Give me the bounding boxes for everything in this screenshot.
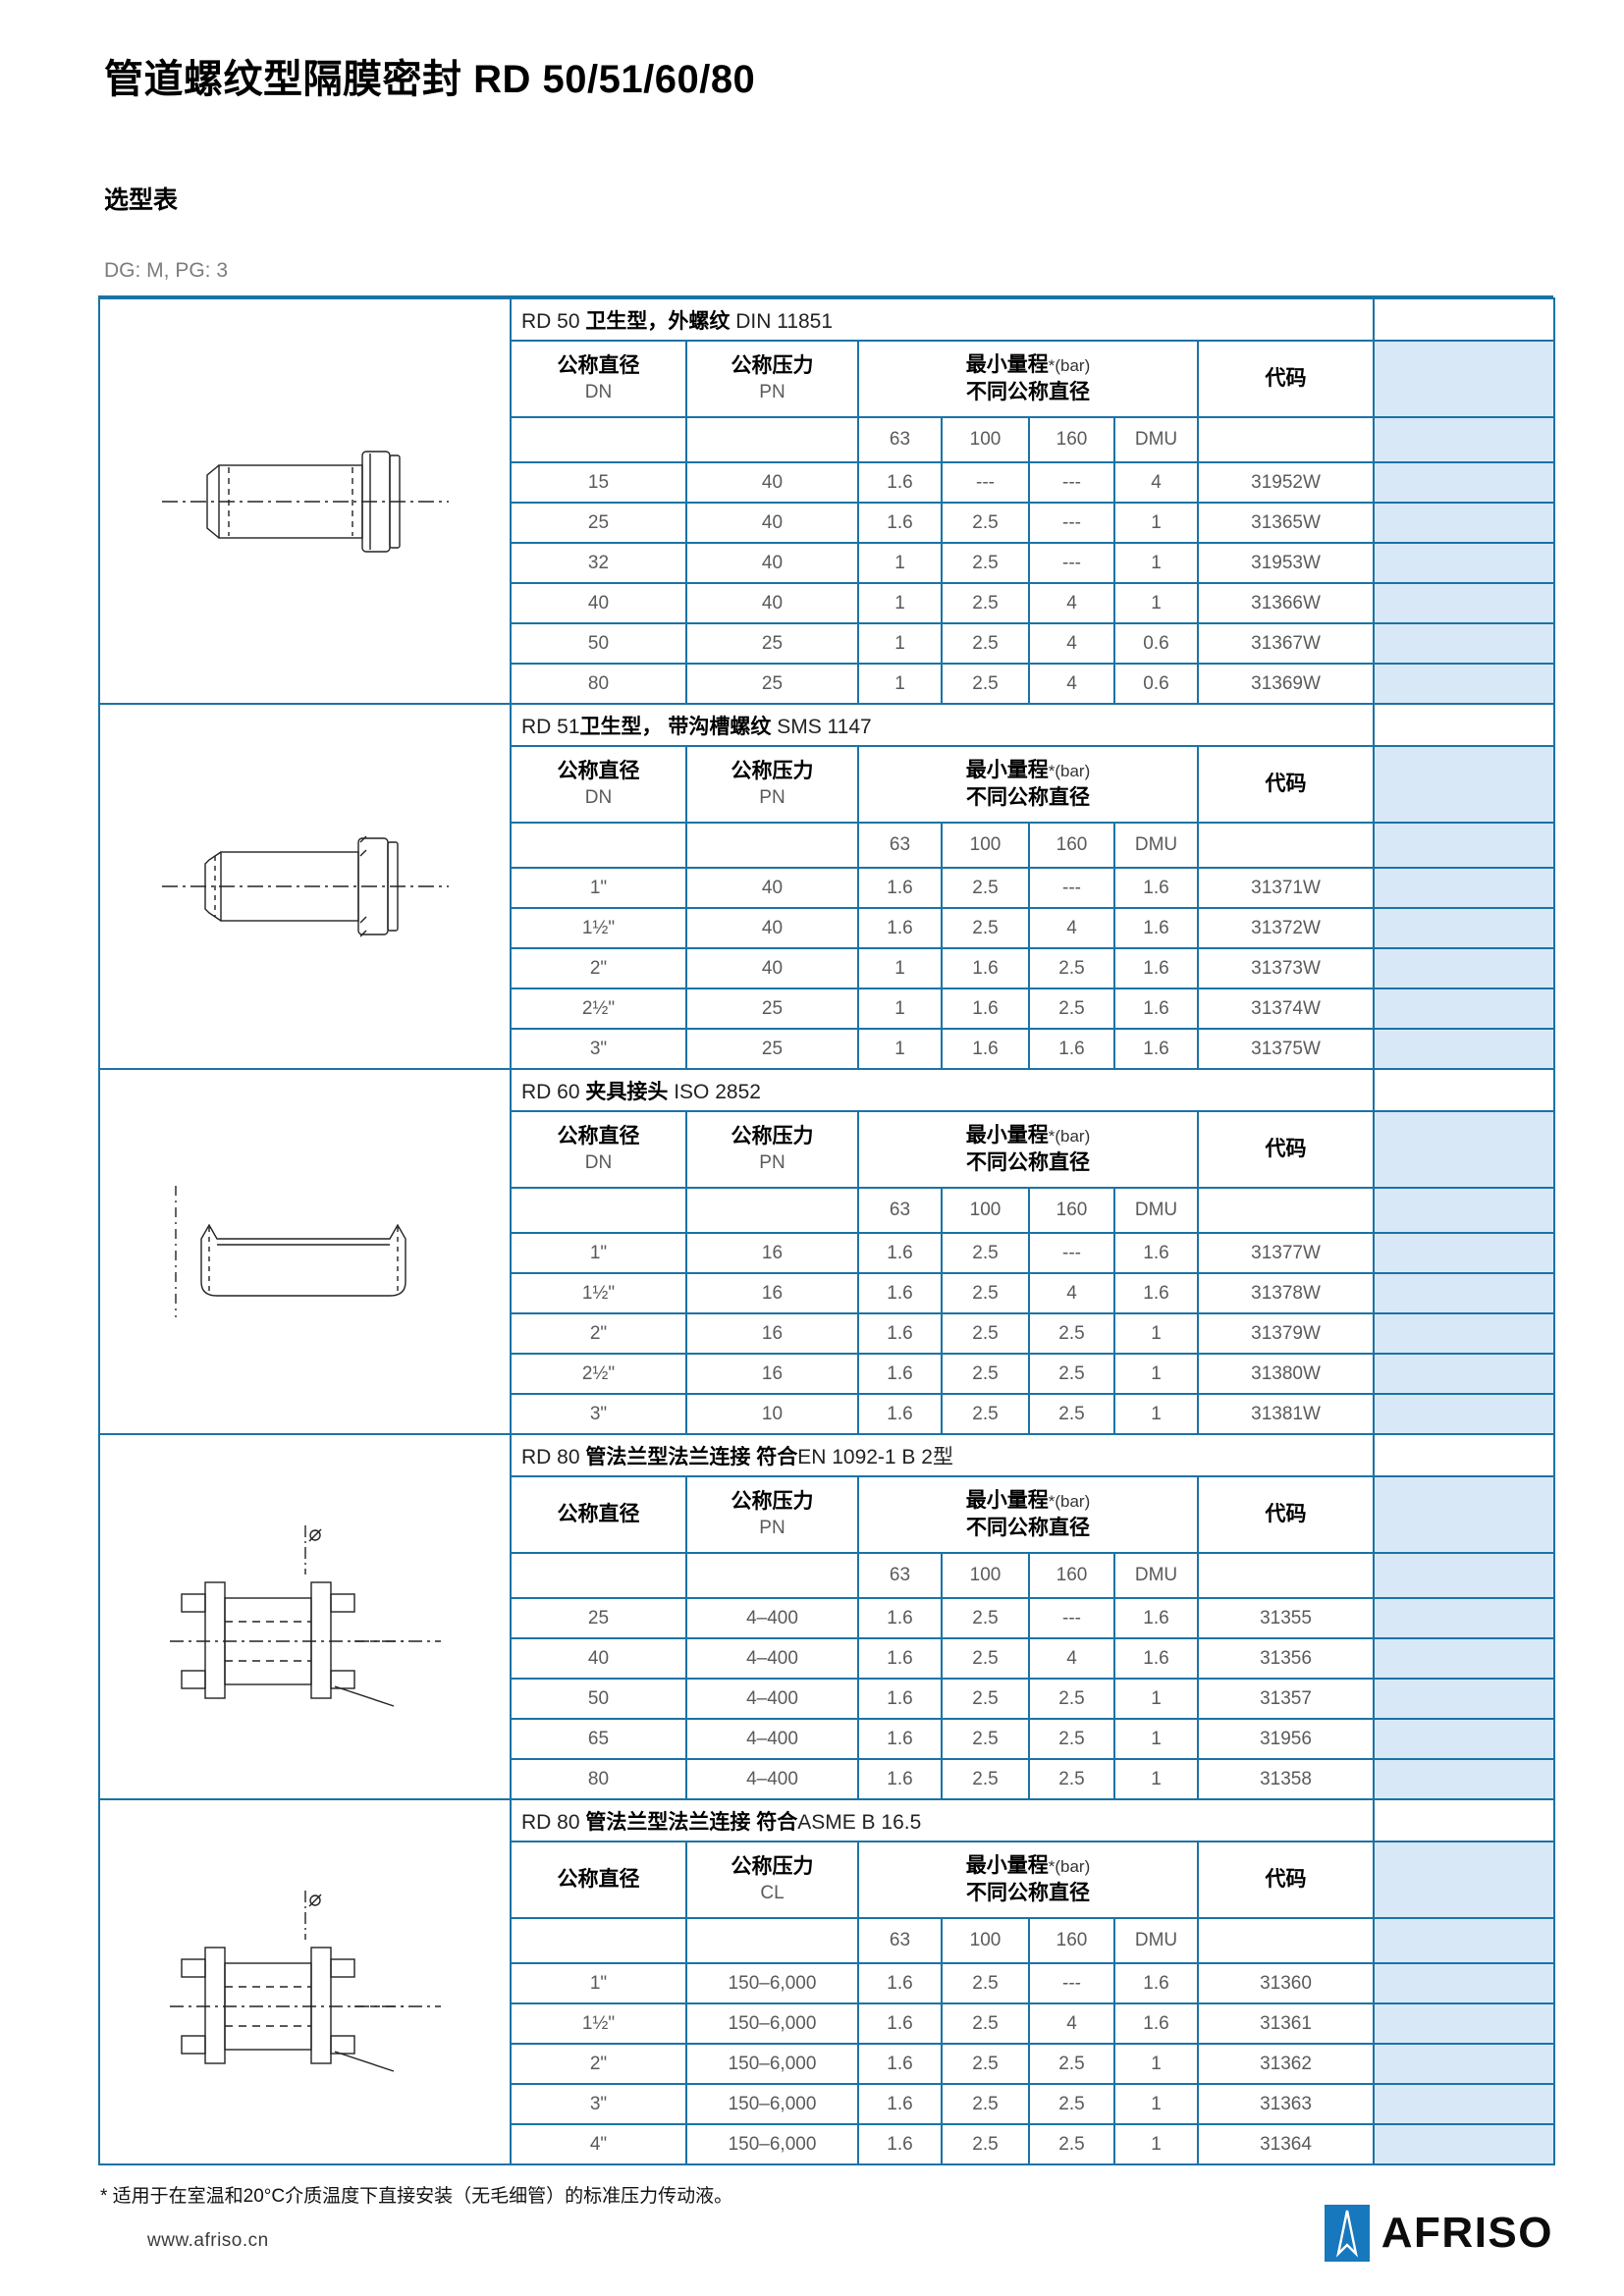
range-63-value: 1.6 bbox=[858, 1273, 942, 1313]
range-subheader-cell: DMU bbox=[1114, 417, 1198, 462]
range-subheader-cell: 160 bbox=[1029, 1918, 1114, 1963]
range-63-value: 1.6 bbox=[858, 1679, 942, 1719]
code-value: 31371W bbox=[1198, 868, 1374, 908]
shaded-cell bbox=[1374, 417, 1554, 462]
min-range-header-cell: 最小量程*(bar)不同公称直径 bbox=[858, 746, 1198, 823]
shaded-cell bbox=[1374, 908, 1554, 948]
pn-header-cell: 公称压力PN bbox=[686, 341, 858, 417]
section-table-rd50: RD 50 卫生型，外螺纹 DIN 11851公称直径DN公称压力PN最小量程*… bbox=[98, 297, 1555, 705]
pn-header-cell: 公称压力PN bbox=[686, 1111, 858, 1188]
code-value: 31374W bbox=[1198, 988, 1374, 1029]
section-title: RD 80 管法兰型法兰连接 符合ASME B 16.5 bbox=[511, 1799, 1374, 1842]
range-subheader-cell: DMU bbox=[1114, 823, 1198, 868]
range-100-value: 2.5 bbox=[942, 1273, 1029, 1313]
min-range-header-cell: 最小量程*(bar)不同公称直径 bbox=[858, 1842, 1198, 1918]
range-dmu-value: 1 bbox=[1114, 1354, 1198, 1394]
rd51-grooved-coupling-drawing bbox=[158, 813, 453, 960]
range-subheader-cell: 63 bbox=[858, 1553, 942, 1598]
range-subheader-cell: DMU bbox=[1114, 1188, 1198, 1233]
section-body: RD 51卫生型， 带沟槽螺纹 SMS 1147公称直径DN公称压力PN最小量程… bbox=[99, 704, 1554, 1069]
dn-header-cell: 公称直径DN bbox=[511, 341, 686, 417]
section-title-segment: EN 1092-1 B 2型 bbox=[797, 1446, 953, 1468]
range-160-value: 2.5 bbox=[1029, 948, 1114, 988]
shaded-cell bbox=[1374, 1233, 1554, 1273]
range-subheader-cell: 100 bbox=[942, 417, 1029, 462]
range-63-value: 1.6 bbox=[858, 1598, 942, 1638]
shaded-cell bbox=[1374, 2003, 1554, 2044]
shaded-cell bbox=[1374, 1394, 1554, 1434]
range-100-value: --- bbox=[942, 462, 1029, 503]
shaded-cell bbox=[1374, 948, 1554, 988]
pn-value: 40 bbox=[686, 583, 858, 623]
range-63-value: 1 bbox=[858, 583, 942, 623]
range-subheader-cell: 160 bbox=[1029, 1188, 1114, 1233]
shaded-cell bbox=[1374, 2124, 1554, 2164]
section-title-row: RD 50 卫生型，外螺纹 DIN 11851 bbox=[99, 298, 1554, 341]
range-100-value: 2.5 bbox=[942, 1719, 1029, 1759]
range-100-value: 2.5 bbox=[942, 2044, 1029, 2084]
empty-cell bbox=[511, 823, 686, 868]
range-subheader-cell: 160 bbox=[1029, 417, 1114, 462]
shaded-cell bbox=[1374, 1598, 1554, 1638]
section-table-rd80-asme: RD 80 管法兰型法兰连接 符合ASME B 16.5公称直径公称压力CL最小… bbox=[98, 1798, 1555, 2165]
range-63-value: 1.6 bbox=[858, 1354, 942, 1394]
dn-value: 80 bbox=[511, 1759, 686, 1799]
pn-value: 16 bbox=[686, 1354, 858, 1394]
dn-value: 15 bbox=[511, 462, 686, 503]
range-100-value: 2.5 bbox=[942, 1598, 1029, 1638]
footer-url: www.afriso.cn bbox=[147, 2230, 269, 2252]
dn-value: 50 bbox=[511, 623, 686, 664]
dn-header-cell: 公称直径DN bbox=[511, 1111, 686, 1188]
range-dmu-value: 1.6 bbox=[1114, 1598, 1198, 1638]
shaded-cell bbox=[1374, 1553, 1554, 1598]
pn-value: 150–6,000 bbox=[686, 2124, 858, 2164]
dn-header-cell: 公称直径 bbox=[511, 1476, 686, 1553]
range-dmu-value: 1 bbox=[1114, 2124, 1198, 2164]
shaded-cell bbox=[1374, 1679, 1554, 1719]
range-dmu-value: 1.6 bbox=[1114, 908, 1198, 948]
dn-value: 1½" bbox=[511, 1273, 686, 1313]
code-value: 31365W bbox=[1198, 503, 1374, 543]
code-value: 31362 bbox=[1198, 2044, 1374, 2084]
range-subheader-cell: 63 bbox=[858, 417, 942, 462]
empty-cell bbox=[1198, 1188, 1374, 1233]
empty-cell bbox=[511, 1918, 686, 1963]
pn-value: 25 bbox=[686, 664, 858, 704]
code-value: 31361 bbox=[1198, 2003, 1374, 2044]
min-range-header-cell: 最小量程*(bar)不同公称直径 bbox=[858, 1111, 1198, 1188]
range-63-value: 1.6 bbox=[858, 1963, 942, 2003]
shaded-cell bbox=[1374, 988, 1554, 1029]
shaded-cell bbox=[1374, 1188, 1554, 1233]
dn-value: 1" bbox=[511, 868, 686, 908]
range-63-value: 1.6 bbox=[858, 908, 942, 948]
afriso-logo-wordmark: AFRISO bbox=[1381, 2209, 1553, 2258]
selection-table: RD 50 卫生型，外螺纹 DIN 11851公称直径DN公称压力PN最小量程*… bbox=[98, 297, 1553, 2208]
range-100-value: 2.5 bbox=[942, 543, 1029, 583]
title-row-blank-cell bbox=[1374, 704, 1554, 746]
range-subheader-cell: 63 bbox=[858, 1918, 942, 1963]
dn-header-cell: 公称直径DN bbox=[511, 746, 686, 823]
section-title-segment: ASME B 16.5 bbox=[797, 1811, 921, 1834]
range-63-value: 1.6 bbox=[858, 2003, 942, 2044]
range-63-value: 1 bbox=[858, 623, 942, 664]
range-160-value: 4 bbox=[1029, 1273, 1114, 1313]
range-100-value: 2.5 bbox=[942, 1354, 1029, 1394]
dn-value: 3" bbox=[511, 1394, 686, 1434]
section-title-segment: 夹具接头 bbox=[585, 1081, 668, 1103]
datasheet-page: 管道螺纹型隔膜密封 RD 50/51/60/80 选型表 DG: M, PG: … bbox=[0, 0, 1624, 2296]
range-dmu-value: 1 bbox=[1114, 1394, 1198, 1434]
shaded-cell bbox=[1374, 746, 1554, 823]
range-subheader-cell: 63 bbox=[858, 823, 942, 868]
section-title-segment: RD 60 bbox=[521, 1081, 585, 1103]
section-title-segment: SMS 1147 bbox=[771, 716, 871, 738]
code-value: 31355 bbox=[1198, 1598, 1374, 1638]
code-value: 31378W bbox=[1198, 1273, 1374, 1313]
code-value: 31369W bbox=[1198, 664, 1374, 704]
range-100-value: 2.5 bbox=[942, 2124, 1029, 2164]
range-160-value: 2.5 bbox=[1029, 1759, 1114, 1799]
dn-value: 25 bbox=[511, 503, 686, 543]
section-body: RD 80 管法兰型法兰连接 符合ASME B 16.5公称直径公称压力CL最小… bbox=[99, 1799, 1554, 2164]
code-value: 31952W bbox=[1198, 462, 1374, 503]
section-table-rd60: RD 60 夹具接头 ISO 2852公称直径DN公称压力PN最小量程*(bar… bbox=[98, 1068, 1555, 1435]
section-title: RD 51卫生型， 带沟槽螺纹 SMS 1147 bbox=[511, 704, 1374, 746]
pn-value: 150–6,000 bbox=[686, 2044, 858, 2084]
code-value: 31953W bbox=[1198, 543, 1374, 583]
code-value: 31367W bbox=[1198, 623, 1374, 664]
range-63-value: 1 bbox=[858, 948, 942, 988]
dn-value: 40 bbox=[511, 583, 686, 623]
range-dmu-value: 1.6 bbox=[1114, 948, 1198, 988]
empty-cell bbox=[1198, 1553, 1374, 1598]
section-title-segment: RD 51 bbox=[521, 716, 580, 738]
range-subheader-cell: 63 bbox=[858, 1188, 942, 1233]
pn-value: 4–400 bbox=[686, 1638, 858, 1679]
range-63-value: 1.6 bbox=[858, 868, 942, 908]
code-value: 31356 bbox=[1198, 1638, 1374, 1679]
range-subheader-cell: 100 bbox=[942, 1188, 1029, 1233]
shaded-cell bbox=[1374, 868, 1554, 908]
shaded-cell bbox=[1374, 1273, 1554, 1313]
range-63-value: 1.6 bbox=[858, 1759, 942, 1799]
pn-value: 4–400 bbox=[686, 1679, 858, 1719]
range-63-value: 1.6 bbox=[858, 2084, 942, 2124]
range-dmu-value: 1 bbox=[1114, 543, 1198, 583]
section-title-segment: 管法兰型法兰连接 符合 bbox=[585, 1811, 797, 1834]
shaded-cell bbox=[1374, 664, 1554, 704]
pn-value: 25 bbox=[686, 988, 858, 1029]
pn-value: 25 bbox=[686, 1029, 858, 1069]
range-160-value: --- bbox=[1029, 462, 1114, 503]
pn-value: 16 bbox=[686, 1233, 858, 1273]
pn-value: 150–6,000 bbox=[686, 1963, 858, 2003]
code-header-cell: 代码 bbox=[1198, 1111, 1374, 1188]
min-range-header-cell: 最小量程*(bar)不同公称直径 bbox=[858, 1476, 1198, 1553]
section-body: RD 50 卫生型，外螺纹 DIN 11851公称直径DN公称压力PN最小量程*… bbox=[99, 298, 1554, 704]
code-value: 31364 bbox=[1198, 2124, 1374, 2164]
range-63-value: 1 bbox=[858, 543, 942, 583]
dn-value: 3" bbox=[511, 2084, 686, 2124]
range-dmu-value: 1.6 bbox=[1114, 1963, 1198, 2003]
section-title-row: RD 51卫生型， 带沟槽螺纹 SMS 1147 bbox=[99, 704, 1554, 746]
shaded-cell bbox=[1374, 1963, 1554, 2003]
range-160-value: 2.5 bbox=[1029, 1354, 1114, 1394]
empty-cell bbox=[686, 823, 858, 868]
empty-cell bbox=[1198, 1918, 1374, 1963]
range-dmu-value: 1.6 bbox=[1114, 868, 1198, 908]
range-subheader-cell: 100 bbox=[942, 1553, 1029, 1598]
afriso-logo-icon bbox=[1325, 2205, 1370, 2262]
section-title-segment: 管法兰型法兰连接 符合 bbox=[585, 1446, 797, 1468]
product-drawing-cell bbox=[99, 1069, 511, 1434]
code-value: 31366W bbox=[1198, 583, 1374, 623]
range-63-value: 1.6 bbox=[858, 2044, 942, 2084]
shaded-cell bbox=[1374, 2044, 1554, 2084]
shaded-cell bbox=[1374, 341, 1554, 417]
shaded-cell bbox=[1374, 1313, 1554, 1354]
section-title-segment: RD 80 bbox=[521, 1811, 585, 1834]
pn-value: 150–6,000 bbox=[686, 2084, 858, 2124]
section-title-segment: RD 80 bbox=[521, 1446, 585, 1468]
section-title-segment: RD 50 bbox=[521, 310, 585, 333]
range-160-value: 4 bbox=[1029, 623, 1114, 664]
section-table-rd80-en: RD 80 管法兰型法兰连接 符合EN 1092-1 B 2型公称直径公称压力P… bbox=[98, 1433, 1555, 1800]
section-table-rd51: RD 51卫生型， 带沟槽螺纹 SMS 1147公称直径DN公称压力PN最小量程… bbox=[98, 703, 1555, 1070]
pn-value: 40 bbox=[686, 868, 858, 908]
code-value: 31956 bbox=[1198, 1719, 1374, 1759]
range-subheader-cell: 160 bbox=[1029, 823, 1114, 868]
code-value: 31372W bbox=[1198, 908, 1374, 948]
range-100-value: 2.5 bbox=[942, 2003, 1029, 2044]
pn-value: 40 bbox=[686, 948, 858, 988]
section-title: RD 50 卫生型，外螺纹 DIN 11851 bbox=[511, 298, 1374, 341]
range-100-value: 2.5 bbox=[942, 664, 1029, 704]
section-title-segment: ISO 2852 bbox=[668, 1081, 761, 1103]
range-dmu-value: 1 bbox=[1114, 503, 1198, 543]
code-header-cell: 代码 bbox=[1198, 341, 1374, 417]
dn-value: 40 bbox=[511, 1638, 686, 1679]
empty-cell bbox=[686, 1918, 858, 1963]
range-100-value: 2.5 bbox=[942, 908, 1029, 948]
range-dmu-value: 1 bbox=[1114, 1313, 1198, 1354]
empty-cell bbox=[511, 1188, 686, 1233]
section-title: RD 80 管法兰型法兰连接 符合EN 1092-1 B 2型 bbox=[511, 1434, 1374, 1476]
dn-header-cell: 公称直径 bbox=[511, 1842, 686, 1918]
range-subheader-cell: DMU bbox=[1114, 1553, 1198, 1598]
range-subheader-cell: 100 bbox=[942, 1918, 1029, 1963]
range-160-value: 2.5 bbox=[1029, 2124, 1114, 2164]
range-100-value: 2.5 bbox=[942, 868, 1029, 908]
range-160-value: --- bbox=[1029, 543, 1114, 583]
page-subtitle: 选型表 bbox=[104, 181, 178, 216]
range-63-value: 1 bbox=[858, 664, 942, 704]
product-drawing-cell bbox=[99, 1434, 511, 1799]
dn-value: 1½" bbox=[511, 2003, 686, 2044]
shaded-cell bbox=[1374, 1759, 1554, 1799]
range-dmu-value: 0.6 bbox=[1114, 664, 1198, 704]
code-value: 31357 bbox=[1198, 1679, 1374, 1719]
dn-value: 2½" bbox=[511, 988, 686, 1029]
rd50-threaded-coupling-drawing bbox=[158, 428, 453, 575]
pn-value: 150–6,000 bbox=[686, 2003, 858, 2044]
range-subheader-cell: DMU bbox=[1114, 1918, 1198, 1963]
code-value: 31363 bbox=[1198, 2084, 1374, 2124]
shaded-cell bbox=[1374, 1111, 1554, 1188]
section-title-row: RD 80 管法兰型法兰连接 符合EN 1092-1 B 2型 bbox=[99, 1434, 1554, 1476]
range-100-value: 2.5 bbox=[942, 583, 1029, 623]
range-160-value: 4 bbox=[1029, 583, 1114, 623]
shaded-cell bbox=[1374, 543, 1554, 583]
range-160-value: 4 bbox=[1029, 2003, 1114, 2044]
range-dmu-value: 1.6 bbox=[1114, 1233, 1198, 1273]
range-100-value: 2.5 bbox=[942, 623, 1029, 664]
code-value: 31379W bbox=[1198, 1313, 1374, 1354]
pn-header-cell: 公称压力PN bbox=[686, 746, 858, 823]
dn-value: 32 bbox=[511, 543, 686, 583]
range-dmu-value: 1 bbox=[1114, 2084, 1198, 2124]
dn-value: 25 bbox=[511, 1598, 686, 1638]
page-meta: DG: M, PG: 3 bbox=[104, 259, 228, 283]
dn-value: 2" bbox=[511, 2044, 686, 2084]
range-160-value: 4 bbox=[1029, 908, 1114, 948]
range-dmu-value: 1.6 bbox=[1114, 1029, 1198, 1069]
product-drawing-cell bbox=[99, 1799, 511, 2164]
range-100-value: 2.5 bbox=[942, 503, 1029, 543]
range-160-value: 1.6 bbox=[1029, 1029, 1114, 1069]
shaded-cell bbox=[1374, 1719, 1554, 1759]
code-header-cell: 代码 bbox=[1198, 1842, 1374, 1918]
pn-value: 40 bbox=[686, 503, 858, 543]
range-dmu-value: 1.6 bbox=[1114, 1638, 1198, 1679]
range-dmu-value: 4 bbox=[1114, 462, 1198, 503]
title-row-blank-cell bbox=[1374, 298, 1554, 341]
range-63-value: 1.6 bbox=[858, 1638, 942, 1679]
shaded-cell bbox=[1374, 1354, 1554, 1394]
product-drawing-cell bbox=[99, 298, 511, 704]
dn-value: 2½" bbox=[511, 1354, 686, 1394]
range-100-value: 1.6 bbox=[942, 988, 1029, 1029]
section-title-segment: 卫生型，外螺纹 bbox=[585, 310, 730, 333]
dn-value: 3" bbox=[511, 1029, 686, 1069]
section-body: RD 60 夹具接头 ISO 2852公称直径DN公称压力PN最小量程*(bar… bbox=[99, 1069, 1554, 1434]
page-title: 管道螺纹型隔膜密封 RD 50/51/60/80 bbox=[104, 47, 755, 104]
pn-value: 4–400 bbox=[686, 1719, 858, 1759]
range-100-value: 1.6 bbox=[942, 948, 1029, 988]
code-value: 31381W bbox=[1198, 1394, 1374, 1434]
title-row-blank-cell bbox=[1374, 1069, 1554, 1111]
range-160-value: 2.5 bbox=[1029, 988, 1114, 1029]
pn-value: 40 bbox=[686, 543, 858, 583]
code-value: 31373W bbox=[1198, 948, 1374, 988]
range-subheader-cell: 160 bbox=[1029, 1553, 1114, 1598]
range-160-value: 4 bbox=[1029, 1638, 1114, 1679]
range-63-value: 1 bbox=[858, 1029, 942, 1069]
empty-cell bbox=[511, 417, 686, 462]
code-value: 31377W bbox=[1198, 1233, 1374, 1273]
pn-value: 40 bbox=[686, 462, 858, 503]
range-160-value: 2.5 bbox=[1029, 1394, 1114, 1434]
range-100-value: 2.5 bbox=[942, 1759, 1029, 1799]
range-160-value: --- bbox=[1029, 503, 1114, 543]
shaded-cell bbox=[1374, 823, 1554, 868]
section-title-row: RD 60 夹具接头 ISO 2852 bbox=[99, 1069, 1554, 1111]
range-160-value: 2.5 bbox=[1029, 1313, 1114, 1354]
shaded-cell bbox=[1374, 2084, 1554, 2124]
dn-value: 2" bbox=[511, 948, 686, 988]
min-range-header-cell: 最小量程*(bar)不同公称直径 bbox=[858, 341, 1198, 417]
range-160-value: --- bbox=[1029, 1233, 1114, 1273]
shaded-cell bbox=[1374, 1842, 1554, 1918]
range-dmu-value: 1 bbox=[1114, 1719, 1198, 1759]
dn-value: 80 bbox=[511, 664, 686, 704]
range-160-value: 2.5 bbox=[1029, 2084, 1114, 2124]
dn-value: 1½" bbox=[511, 908, 686, 948]
range-63-value: 1 bbox=[858, 988, 942, 1029]
rd60-clamp-ferrule-drawing bbox=[158, 1178, 453, 1325]
pn-header-cell: 公称压力CL bbox=[686, 1842, 858, 1918]
pn-value: 25 bbox=[686, 623, 858, 664]
afriso-logo: AFRISO bbox=[1325, 2205, 1553, 2262]
range-dmu-value: 0.6 bbox=[1114, 623, 1198, 664]
range-100-value: 2.5 bbox=[942, 1679, 1029, 1719]
range-dmu-value: 1 bbox=[1114, 1679, 1198, 1719]
shaded-cell bbox=[1374, 462, 1554, 503]
range-100-value: 2.5 bbox=[942, 2084, 1029, 2124]
pn-value: 4–400 bbox=[686, 1598, 858, 1638]
rd80-asme-flange-drawing bbox=[158, 1889, 453, 2075]
range-100-value: 1.6 bbox=[942, 1029, 1029, 1069]
shaded-cell bbox=[1374, 1476, 1554, 1553]
code-value: 31380W bbox=[1198, 1354, 1374, 1394]
range-63-value: 1.6 bbox=[858, 1233, 942, 1273]
range-63-value: 1.6 bbox=[858, 503, 942, 543]
empty-cell bbox=[1198, 417, 1374, 462]
range-dmu-value: 1 bbox=[1114, 2044, 1198, 2084]
range-dmu-value: 1 bbox=[1114, 583, 1198, 623]
section-title: RD 60 夹具接头 ISO 2852 bbox=[511, 1069, 1374, 1111]
pn-value: 10 bbox=[686, 1394, 858, 1434]
code-header-cell: 代码 bbox=[1198, 1476, 1374, 1553]
range-160-value: 4 bbox=[1029, 664, 1114, 704]
range-63-value: 1.6 bbox=[858, 1394, 942, 1434]
range-63-value: 1.6 bbox=[858, 1313, 942, 1354]
code-header-cell: 代码 bbox=[1198, 746, 1374, 823]
code-value: 31358 bbox=[1198, 1759, 1374, 1799]
dn-value: 4" bbox=[511, 2124, 686, 2164]
range-63-value: 1.6 bbox=[858, 462, 942, 503]
range-subheader-cell: 100 bbox=[942, 823, 1029, 868]
range-63-value: 1.6 bbox=[858, 2124, 942, 2164]
footnote: * 适用于在室温和20°C介质温度下直接安装（无毛细管）的标准压力传动液。 bbox=[100, 2181, 1553, 2208]
dn-value: 1" bbox=[511, 1963, 686, 2003]
section-body: RD 80 管法兰型法兰连接 符合EN 1092-1 B 2型公称直径公称压力P… bbox=[99, 1434, 1554, 1799]
section-title-row: RD 80 管法兰型法兰连接 符合ASME B 16.5 bbox=[99, 1799, 1554, 1842]
empty-cell bbox=[686, 1188, 858, 1233]
range-dmu-value: 1.6 bbox=[1114, 1273, 1198, 1313]
empty-cell bbox=[511, 1553, 686, 1598]
range-100-value: 2.5 bbox=[942, 1394, 1029, 1434]
dn-value: 50 bbox=[511, 1679, 686, 1719]
range-63-value: 1.6 bbox=[858, 1719, 942, 1759]
section-title-segment: DIN 11851 bbox=[730, 310, 833, 333]
pn-header-cell: 公称压力PN bbox=[686, 1476, 858, 1553]
range-100-value: 2.5 bbox=[942, 1233, 1029, 1273]
code-value: 31360 bbox=[1198, 1963, 1374, 2003]
range-160-value: --- bbox=[1029, 868, 1114, 908]
